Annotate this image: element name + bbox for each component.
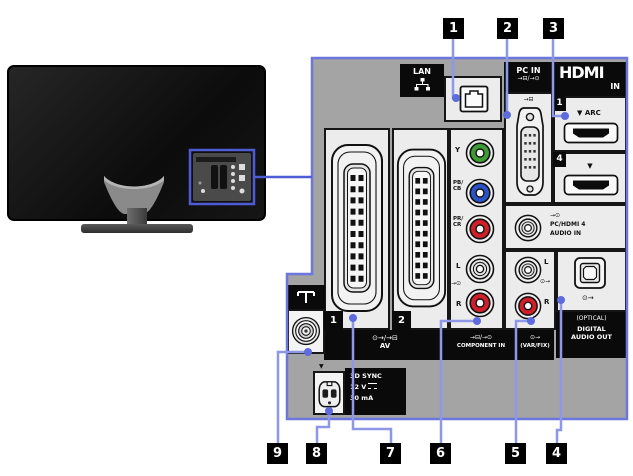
- callout-label-9: 9: [267, 443, 288, 464]
- tv-stand-base: [81, 224, 193, 233]
- component-r-label: R: [456, 300, 461, 308]
- hdmi4-number-tab: 4: [553, 152, 566, 167]
- pc-hdmi4-audio-in-block: →⊙ PC/HDMI 4 AUDIO IN: [504, 204, 627, 250]
- component-pr-jack: [465, 214, 495, 244]
- varfix-strip: ⊙→ (VAR/FIX): [516, 330, 554, 360]
- component-l-label: L: [456, 262, 460, 270]
- callout-label-4: 4: [546, 443, 567, 464]
- av-io-icons: ⊙→/→⊟: [324, 334, 446, 342]
- tv-panel-thumbnail-art: [193, 153, 251, 201]
- component-io-icons: →⊟/→⊙: [446, 334, 516, 341]
- optical-label: (OPTICAL): [556, 315, 627, 322]
- lan-label-plate: LAN: [400, 64, 444, 97]
- callout-label-8: 8: [306, 443, 327, 464]
- audio-out-l-label: L: [544, 258, 548, 266]
- audio-out-r-jack: [514, 292, 542, 320]
- sync-line3: 30 mA: [350, 394, 406, 402]
- lan-port-box: [444, 76, 502, 122]
- hdmi1-port: [563, 122, 619, 144]
- audio-out-r-label: R: [544, 298, 549, 306]
- pc-in-block: →⊟: [504, 92, 553, 204]
- sync-port-box: [313, 371, 345, 415]
- optical-out-block: ⊙→: [556, 250, 627, 312]
- component-audio-l-jack: [465, 254, 495, 284]
- vga-port: [510, 106, 550, 198]
- varfix-icon: ⊙→: [516, 334, 554, 341]
- hdmi-logo-plate: HDMI IN: [553, 62, 627, 96]
- audio-out-l-jack: [514, 256, 542, 284]
- component-in-block: Y PB/ CB PR/ CR L: [449, 128, 504, 330]
- component-y-jack: [465, 138, 495, 168]
- lan-label: LAN: [400, 67, 444, 76]
- hdmi1-arc-label: ▼ ARC: [577, 109, 601, 117]
- scart-av2-block: [392, 128, 449, 330]
- component-pr-label: PR/ CR: [453, 216, 463, 228]
- component-in-strip: →⊟/→⊙ COMPONENT IN: [446, 330, 516, 360]
- callout-label-7: 7: [380, 443, 401, 464]
- scart-av2-port: [396, 143, 447, 313]
- optical-out-icon: ⊙→: [582, 294, 594, 302]
- av-label: AV: [324, 342, 446, 350]
- sync-3d-port: [317, 379, 342, 409]
- audio-out-icon: ⊙→: [540, 278, 550, 285]
- av1-number-tab: 1: [324, 311, 343, 330]
- tv-stand-column: [127, 208, 147, 225]
- av-strip: ⊙→/→⊟ AV: [324, 330, 446, 360]
- sync-line1: 3D SYNC: [350, 372, 406, 380]
- callout-label-2: 2: [497, 18, 518, 39]
- component-pb-jack: [465, 178, 495, 208]
- antenna-label-plate: [287, 285, 325, 309]
- digital-out-line2: AUDIO OUT: [556, 333, 627, 341]
- tv-panel-thumbnail: [193, 153, 251, 201]
- optical-port: [573, 256, 607, 290]
- component-y-label: Y: [455, 146, 460, 154]
- callout-label-6: 6: [430, 443, 451, 464]
- dc-symbol-icon: [368, 383, 377, 389]
- pc-in-io-icons: →⊟/→⊙: [504, 75, 553, 82]
- callout-label-1: 1: [443, 18, 464, 39]
- sync-line2: 12 V: [350, 383, 406, 391]
- aerial-icon: [296, 290, 316, 304]
- av2-number-tab: 2: [392, 311, 411, 330]
- hdmi-logo: HDMI: [559, 64, 627, 82]
- tv-rear-connection-diagram: LAN PC IN →⊟/→⊙ →⊟ HDMI IN ▼ AR: [0, 0, 633, 476]
- antenna-port: [291, 316, 321, 346]
- sync-arrow: ▼: [319, 363, 324, 370]
- audio-in-jack-white: [514, 214, 542, 242]
- component-audio-in-icon: →⊙: [451, 280, 461, 287]
- network-icon: [414, 78, 431, 91]
- scart-av1-block: [324, 128, 390, 330]
- varfix-label: (VAR/FIX): [516, 343, 554, 349]
- audio-in-line1: PC/HDMI 4: [550, 221, 585, 228]
- pc-in-label: PC IN: [504, 66, 553, 75]
- callout-label-5: 5: [505, 443, 526, 464]
- pc-input-icon: →⊟: [506, 96, 551, 103]
- hdmi1-number-tab: 1: [553, 96, 566, 111]
- hdmi4-port: [563, 174, 619, 196]
- audio-in-icon: →⊙: [550, 212, 560, 219]
- lan-port: [459, 85, 489, 113]
- audio-in-line2: AUDIO IN: [550, 230, 581, 237]
- hdmi-logo-in: IN: [553, 82, 620, 91]
- sync-label-plate: 3D SYNC 12 V 30 mA: [345, 368, 406, 415]
- antenna-port-box: [287, 309, 325, 354]
- digital-out-line1: DIGITAL: [556, 325, 627, 333]
- pc-in-label-plate: PC IN →⊟/→⊙: [504, 62, 553, 92]
- component-audio-r-jack: [465, 288, 495, 318]
- scart-av1-port: [330, 143, 384, 313]
- component-in-label: COMPONENT IN: [446, 343, 516, 349]
- digital-audio-out-plate: (OPTICAL) DIGITAL AUDIO OUT: [556, 312, 627, 358]
- audio-out-varfix-block: L ⊙→ R: [504, 250, 556, 330]
- component-pb-label: PB/ CB: [453, 180, 463, 192]
- callout-label-3: 3: [543, 18, 564, 39]
